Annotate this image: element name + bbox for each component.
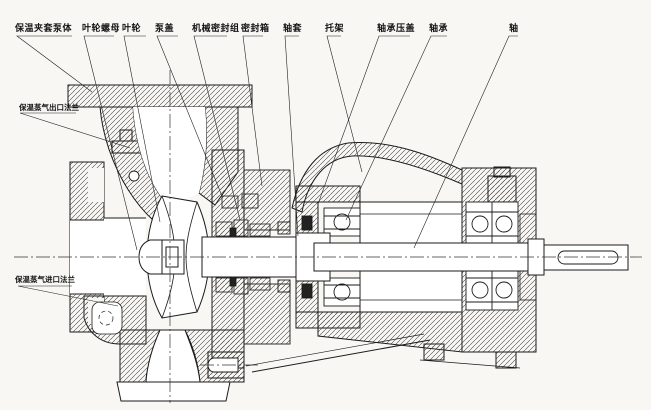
part-label-bearing-gland: 轴承压盖 xyxy=(377,24,415,34)
pedestal-foot xyxy=(117,382,230,401)
part-label-bracket: 托架 xyxy=(325,24,344,34)
part-label-pump-cover: 泵盖 xyxy=(155,24,174,34)
part-label-impeller-nut: 叶轮螺母 xyxy=(82,24,120,34)
bracket-foot xyxy=(424,344,444,360)
part-label-shaft: 轴 xyxy=(509,24,519,34)
part-label-shaft-sleeve: 轴套 xyxy=(283,24,302,34)
part-label-steam-inlet-flange: 保温蒸气进口法兰 xyxy=(15,275,75,285)
part-label-mechanical-seal-assembly: 机械密封组 xyxy=(192,24,240,34)
part-label-insulation-jacket-pump-body: 保温夹套泵体 xyxy=(15,24,72,34)
part-label-seal-box: 密封箱 xyxy=(241,24,270,34)
discharge-flange xyxy=(68,85,252,107)
pump-cross-section-figure: 保温夹套泵体 叶轮螺母 叶轮 泵盖 机械密封组 密封箱 轴套 托架 轴承压盖 轴… xyxy=(0,0,651,410)
pump-cross-section-drawing xyxy=(0,0,651,410)
part-label-steam-outlet-flange: 保温蒸气出口法兰 xyxy=(19,103,79,113)
jacket-bolt-hole xyxy=(129,171,139,181)
part-label-bearing: 轴承 xyxy=(429,24,448,34)
part-label-impeller: 叶轮 xyxy=(122,24,141,34)
shaft-end xyxy=(544,245,628,270)
